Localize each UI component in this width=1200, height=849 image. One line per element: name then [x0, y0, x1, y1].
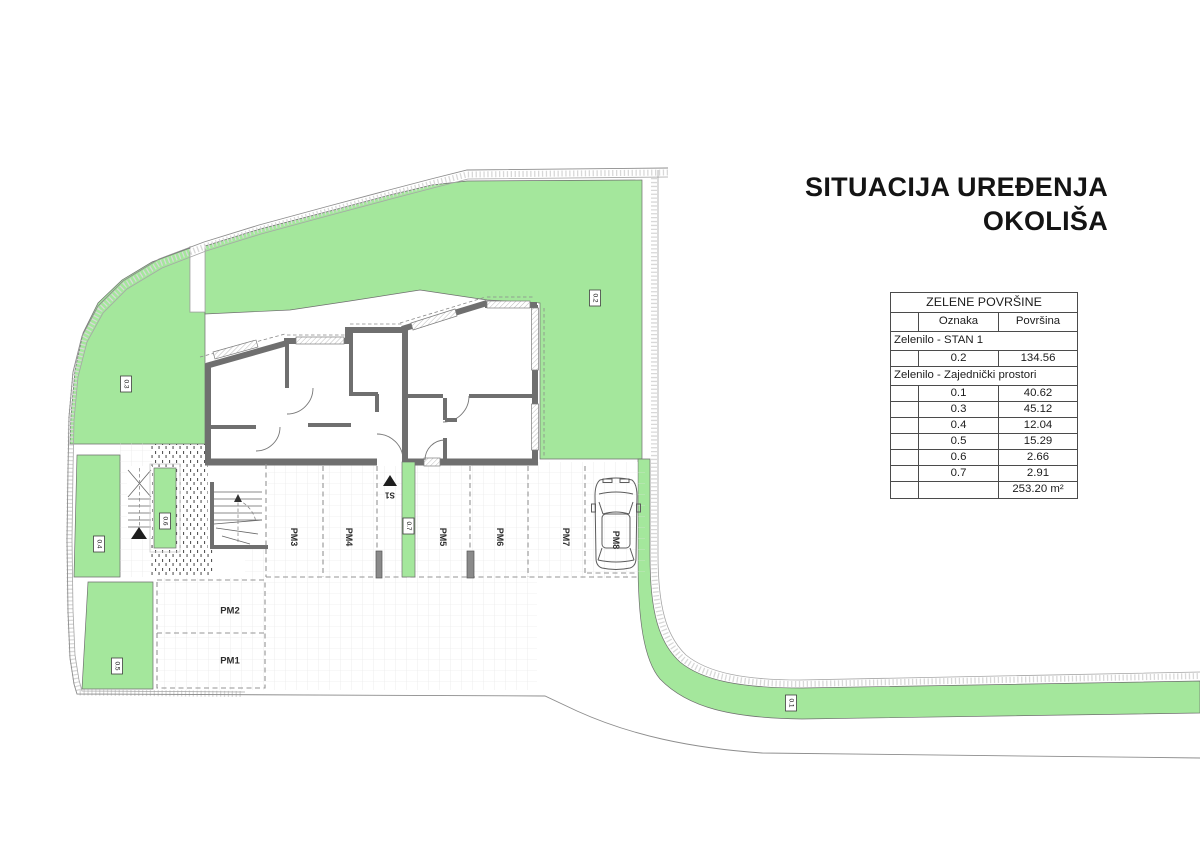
legend-row-data: 0.62.66 — [891, 450, 1078, 466]
parking-label-pm6: PM6 — [495, 528, 505, 547]
legend-row-section: Zelenilo - STAN 1 — [891, 332, 1078, 351]
area-label-01: 0.1 — [786, 695, 797, 711]
building-footprint — [205, 301, 538, 465]
parking-label-pm8: PM8 — [611, 531, 621, 550]
legend-row-data: 0.412.04 — [891, 418, 1078, 434]
svg-text:S1: S1 — [385, 491, 395, 500]
area-label-04: 0.4 — [94, 536, 105, 552]
parking-label-pm3: PM3 — [289, 528, 299, 547]
parking-label-pm5: PM5 — [438, 528, 448, 547]
area-label-06: 0.6 — [160, 513, 171, 529]
area-label-02: 0.2 — [590, 290, 601, 306]
external-staircase — [127, 466, 152, 539]
svg-text:0.6: 0.6 — [162, 516, 169, 525]
parking-label-pm1: PM1 — [220, 656, 240, 667]
legend-row-data: 0.2134.56 — [891, 351, 1078, 367]
page-title: SITUACIJA UREĐENJA OKOLIŠA — [805, 170, 1108, 238]
legend-row-data: 0.515.29 — [891, 434, 1078, 450]
parking-label-pm2: PM2 — [220, 606, 240, 617]
svg-text:0.4: 0.4 — [96, 539, 103, 548]
green-area-04 — [74, 455, 120, 577]
legend-row-data: 0.72.91 — [891, 466, 1078, 482]
wheel-stop — [376, 551, 382, 578]
page-title-line1: SITUACIJA UREĐENJA — [805, 170, 1108, 204]
green-area-03 — [70, 248, 205, 444]
wheel-stop — [467, 551, 474, 578]
green-areas-table: ZELENE POVRŠINEOznakaPovršinaZelenilo - … — [890, 292, 1078, 499]
legend-row-data: 0.345.12 — [891, 402, 1078, 418]
site-plan-page: 0.3 0.2 0.4 0.5 0.6 0.7 — [0, 0, 1200, 849]
area-label-07: 0.7 — [403, 518, 414, 534]
parking-label-pm4: PM4 — [344, 528, 354, 547]
area-label-03: 0.3 — [121, 376, 132, 392]
area-label-05: 0.5 — [112, 658, 123, 674]
winder-staircase — [210, 482, 268, 549]
legend-row-title: ZELENE POVRŠINE — [891, 293, 1078, 313]
svg-text:0.1: 0.1 — [788, 698, 795, 707]
page-title-line2: OKOLIŠA — [805, 204, 1108, 238]
legend-row-header: OznakaPovršina — [891, 313, 1078, 332]
paving-texture-2 — [157, 578, 537, 690]
window — [424, 458, 440, 466]
legend-row-data: 0.140.62 — [891, 386, 1078, 402]
parking-label-pm7: PM7 — [561, 528, 571, 547]
svg-text:0.5: 0.5 — [114, 661, 121, 670]
svg-text:0.3: 0.3 — [123, 379, 130, 388]
legend-row-section: Zelenilo - Zajednički prostori — [891, 367, 1078, 386]
legend-table-body: ZELENE POVRŠINEOznakaPovršinaZelenilo - … — [891, 293, 1078, 499]
svg-text:0.2: 0.2 — [592, 293, 599, 302]
svg-text:0.7: 0.7 — [405, 521, 412, 530]
legend-row-total: 253.20 m² — [891, 482, 1078, 499]
planter-06 — [150, 464, 180, 552]
